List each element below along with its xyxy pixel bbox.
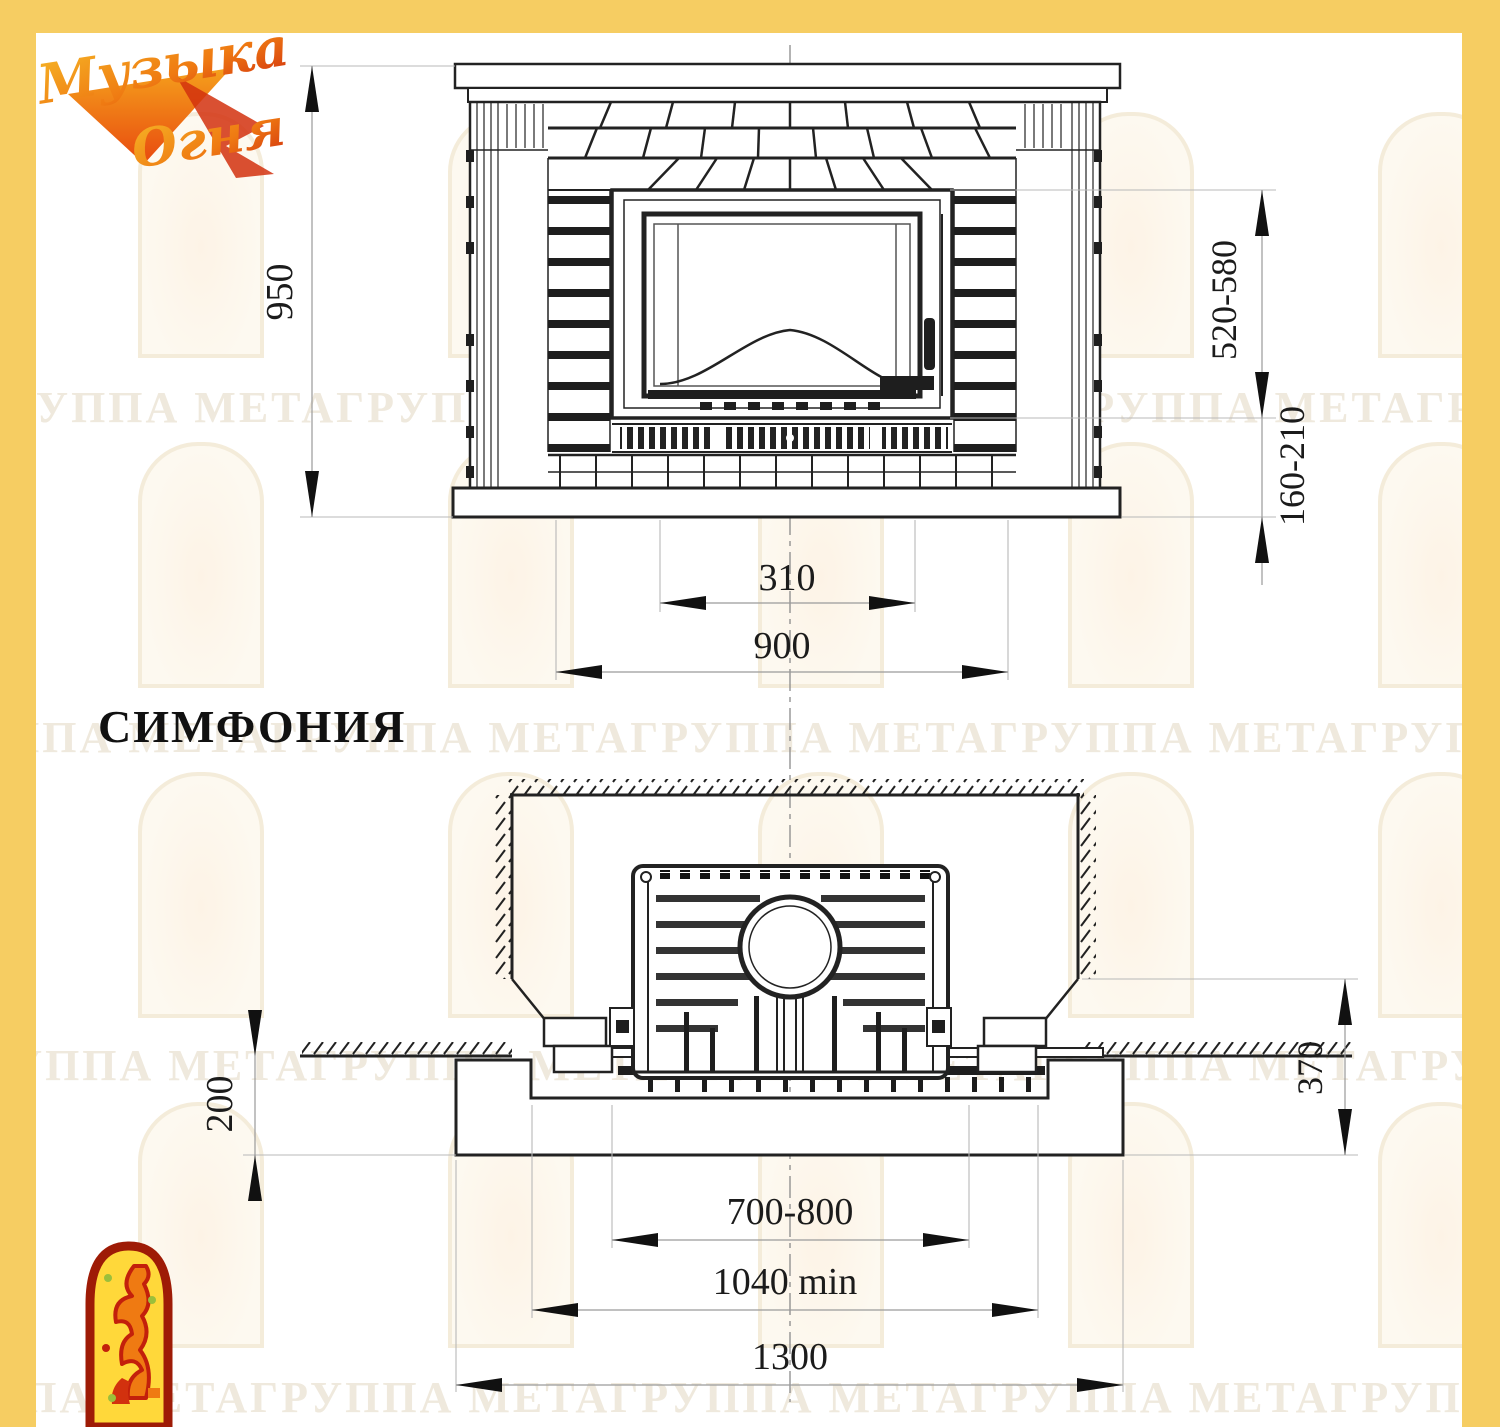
dim-side-clearance: 370 bbox=[1290, 1041, 1330, 1095]
mantel-shelf bbox=[455, 64, 1120, 88]
door-sill bbox=[648, 390, 916, 399]
brand-logo: Музыка Огня bbox=[26, 6, 316, 206]
door-handle bbox=[924, 318, 935, 370]
flue-opening bbox=[740, 897, 840, 997]
dim-firebox-height: 520-580 bbox=[1204, 240, 1244, 360]
dim-inner-width: 900 bbox=[754, 625, 811, 667]
firebox bbox=[612, 190, 952, 418]
frame-left-bar bbox=[0, 0, 36, 1427]
dim-foundation-width: 1300 bbox=[752, 1336, 828, 1378]
frame-right-bar bbox=[1462, 0, 1500, 1427]
page: ГРУППА МЕТАГРУППА МЕТАГРУППА МЕТАГРУППА … bbox=[0, 0, 1500, 1427]
base-slab bbox=[453, 488, 1120, 517]
dim-foundation-depth: 200 bbox=[199, 1076, 241, 1133]
dim-firebox-width: 700-800 bbox=[727, 1191, 854, 1233]
ash-lip bbox=[880, 376, 934, 390]
dim-ash-width: 310 bbox=[759, 557, 816, 599]
dim-niche-width: 1040 min bbox=[713, 1261, 858, 1303]
product-title: СИМФОНИЯ bbox=[98, 700, 406, 753]
grille-strip bbox=[612, 424, 952, 452]
dim-hearth-height: 160-210 bbox=[1272, 406, 1312, 526]
plan-view: 200 370 700-800 bbox=[199, 779, 1358, 1392]
mantel-lip bbox=[468, 88, 1107, 102]
dim-overall-height: 950 bbox=[259, 264, 301, 321]
firebox-plan bbox=[610, 866, 951, 1078]
flame-mascot bbox=[82, 1238, 176, 1427]
